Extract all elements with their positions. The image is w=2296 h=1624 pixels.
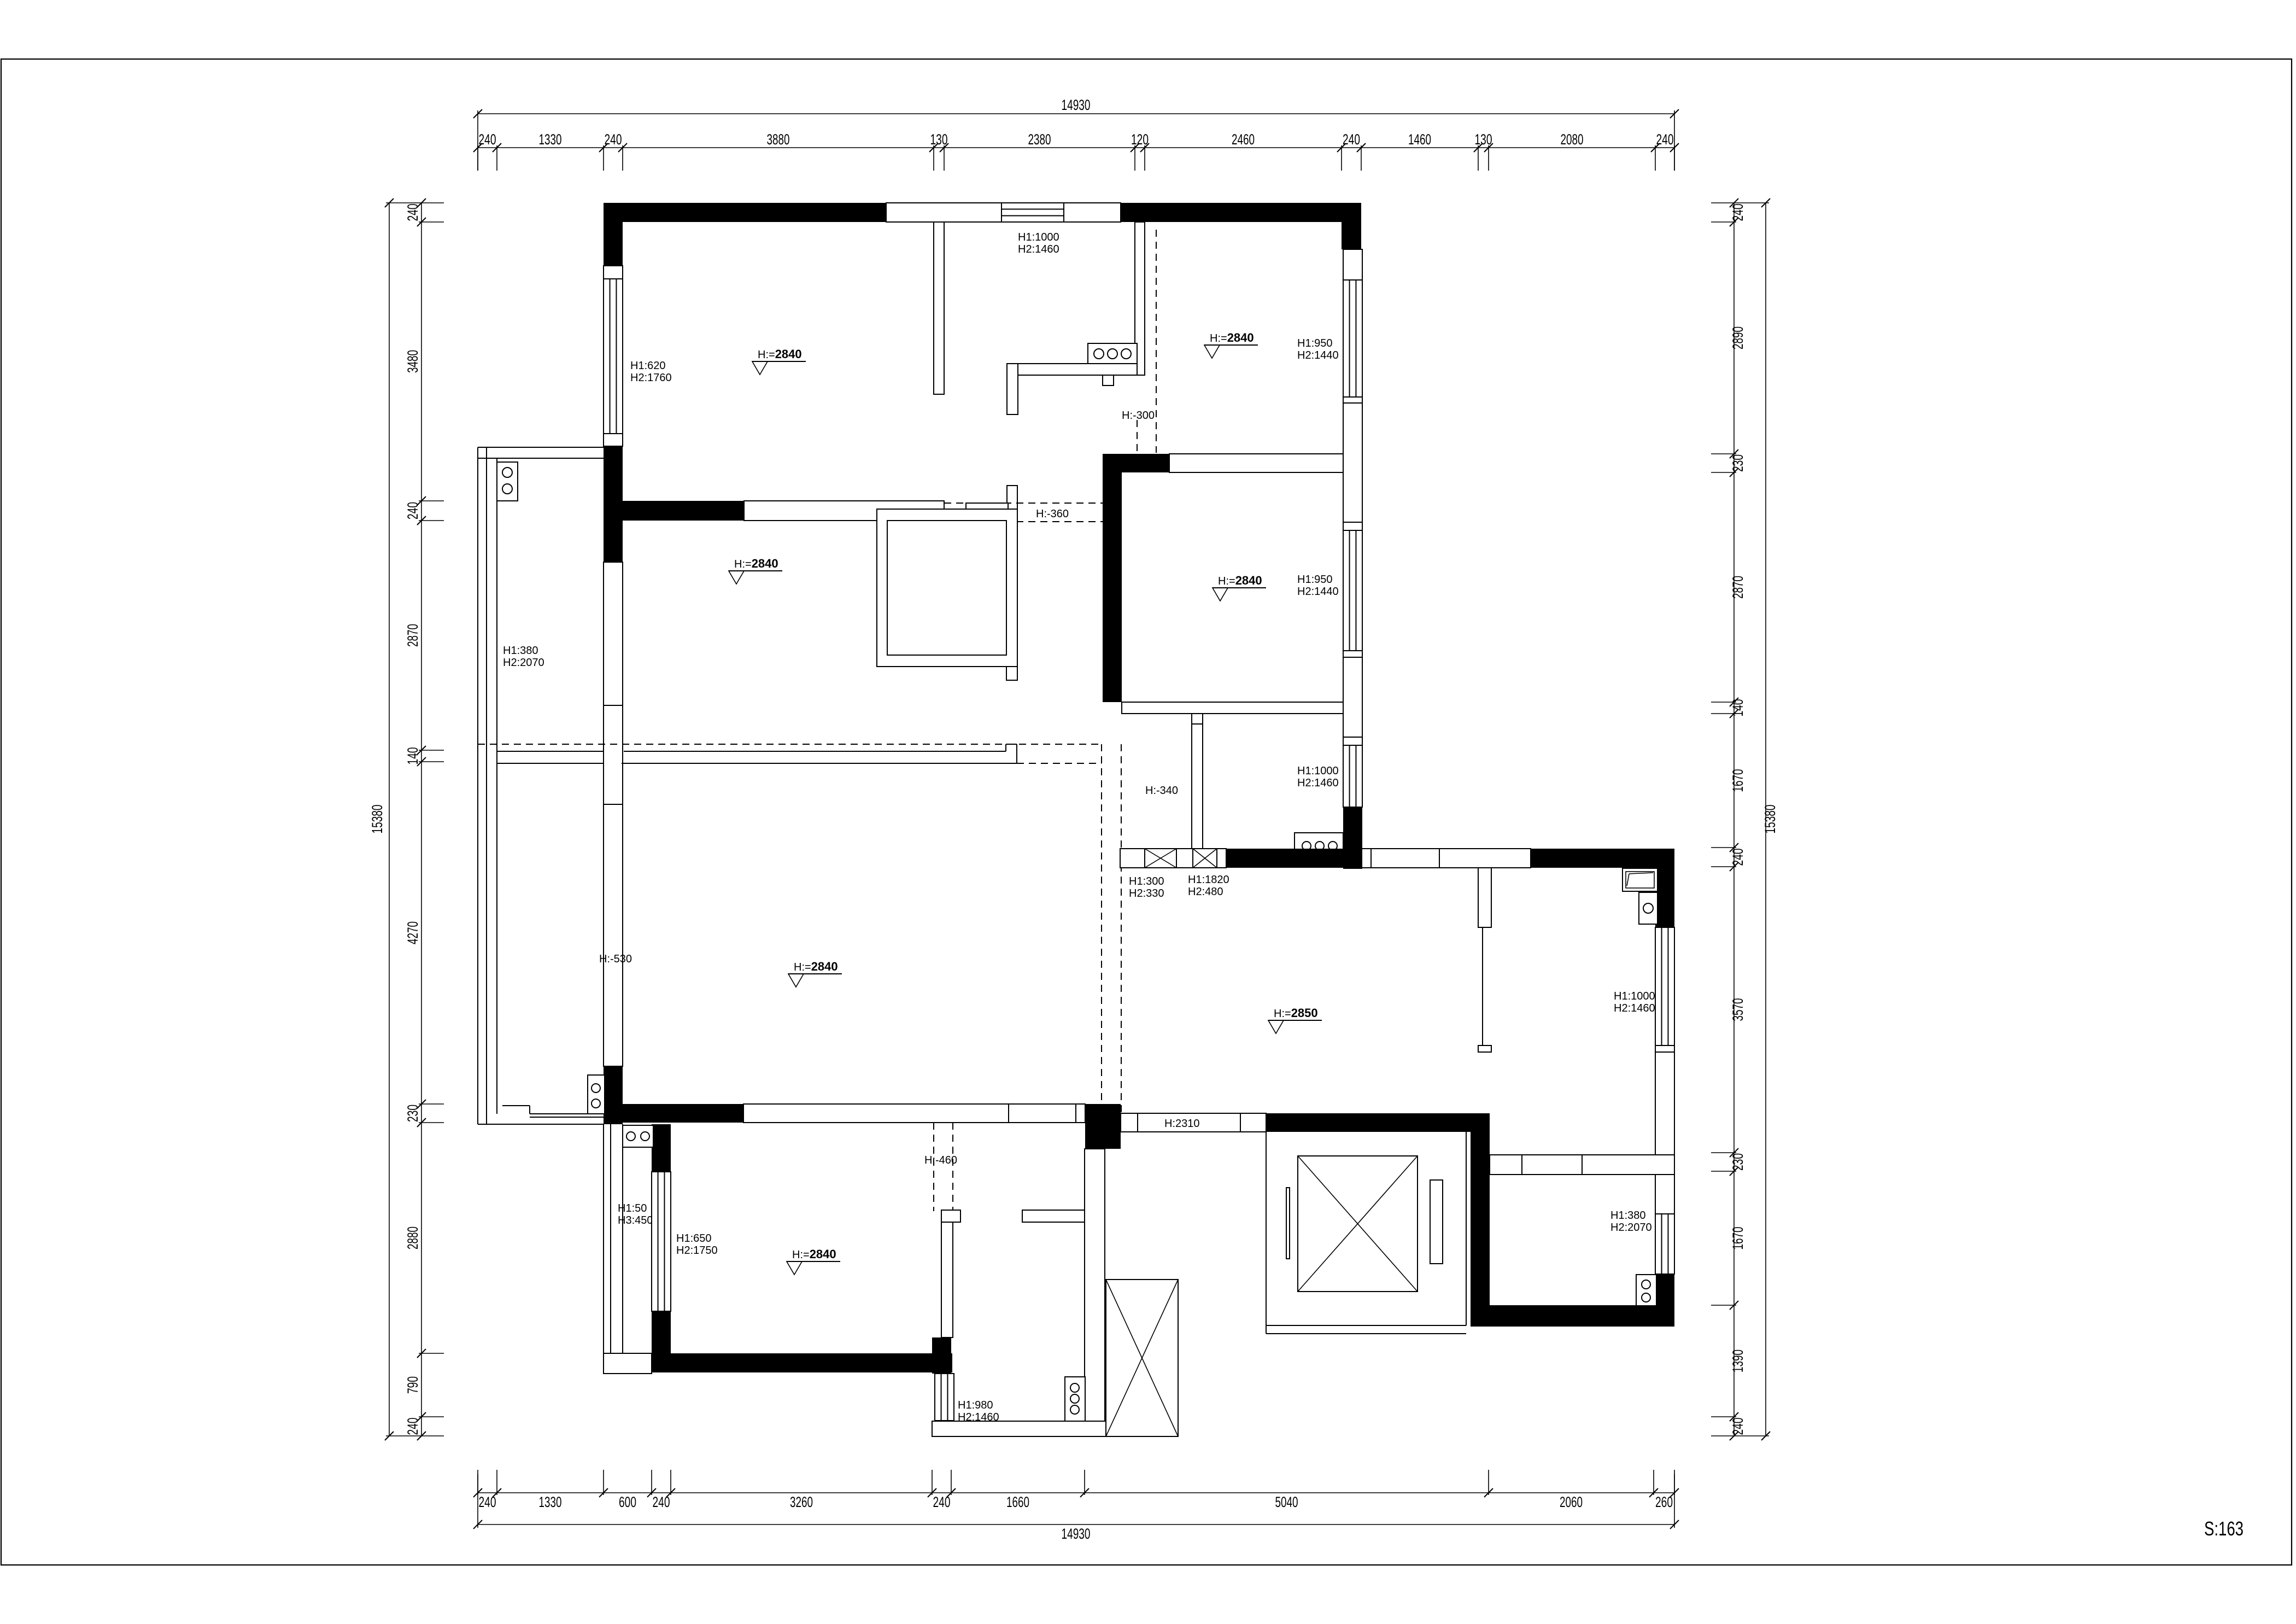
svg-text:15380: 15380 [369,805,385,834]
svg-text:240: 240 [405,1418,421,1435]
svg-text:H2:1440: H2:1440 [1297,349,1339,361]
svg-text:H1:950: H1:950 [1297,574,1333,586]
svg-text:2460: 2460 [1232,131,1255,148]
svg-text:230: 230 [1730,454,1746,472]
svg-text:2380: 2380 [1028,131,1051,148]
svg-text:H:=2840: H:=2840 [794,960,838,973]
svg-text:H1:380: H1:380 [503,645,538,657]
svg-text:H:=2840: H:=2840 [792,1247,836,1261]
svg-text:H2:1750: H2:1750 [676,1245,718,1257]
svg-text:240: 240 [933,1494,951,1510]
svg-text:140: 140 [1730,699,1746,717]
svg-text:H2:1460: H2:1460 [1614,1002,1655,1014]
svg-text:240: 240 [1730,849,1746,866]
svg-text:2890: 2890 [1730,326,1746,349]
svg-text:H2:1460: H2:1460 [1297,777,1339,789]
svg-text:240: 240 [1730,1418,1746,1435]
svg-text:240: 240 [405,502,421,519]
svg-text:240: 240 [405,204,421,221]
svg-text:240: 240 [479,131,496,148]
svg-text:130: 130 [1475,131,1492,148]
svg-text:14930: 14930 [1062,97,1091,113]
svg-text:H2:1760: H2:1760 [630,372,672,384]
svg-text:600: 600 [619,1494,636,1510]
svg-text:140: 140 [405,747,421,765]
svg-text:4270: 4270 [405,921,421,944]
svg-text:1670: 1670 [1730,769,1746,792]
svg-text:H:=2850: H:=2850 [1274,1006,1318,1020]
svg-text:240: 240 [1730,204,1746,221]
svg-text:3480: 3480 [405,350,421,373]
svg-text:H2:480: H2:480 [1188,886,1223,898]
svg-text:260: 260 [1655,1494,1673,1510]
svg-text:H:2310: H:2310 [1164,1118,1200,1130]
svg-text:H2:1440: H2:1440 [1297,586,1339,598]
svg-text:H:=2840: H:=2840 [1218,574,1262,587]
svg-text:240: 240 [479,1494,496,1510]
svg-text:1330: 1330 [539,131,562,148]
svg-text:H1:1000: H1:1000 [1018,231,1059,243]
svg-text:H1:950: H1:950 [1297,337,1333,349]
svg-text:230: 230 [1730,1153,1746,1171]
svg-text:H2:2070: H2:2070 [1610,1222,1652,1234]
svg-text:H1:650: H1:650 [676,1232,712,1245]
svg-text:H:-460: H:-460 [924,1154,957,1166]
svg-text:2870: 2870 [405,624,421,647]
svg-text:H1:300: H1:300 [1129,875,1164,887]
svg-text:H2:330: H2:330 [1129,887,1164,899]
svg-text:130: 130 [930,131,948,148]
svg-text:1660: 1660 [1006,1494,1029,1510]
svg-text:2870: 2870 [1730,576,1746,599]
svg-text:240: 240 [605,131,622,148]
svg-text:2880: 2880 [405,1226,421,1249]
svg-text:2080: 2080 [1561,131,1584,148]
svg-text:H:=2840: H:=2840 [758,347,802,361]
svg-text:H1:1000: H1:1000 [1297,765,1339,777]
svg-text:1390: 1390 [1730,1350,1746,1372]
svg-text:3570: 3570 [1730,998,1746,1021]
svg-text:H:-340: H:-340 [1145,785,1178,797]
svg-text:H:=2840: H:=2840 [1210,331,1254,344]
svg-text:H1:980: H1:980 [958,1399,993,1411]
svg-text:H1:620: H1:620 [630,360,666,372]
svg-text:3880: 3880 [767,131,790,148]
svg-text:1330: 1330 [539,1494,562,1510]
svg-text:H1:380: H1:380 [1610,1210,1646,1222]
svg-text:14930: 14930 [1062,1526,1091,1542]
svg-text:790: 790 [405,1376,421,1394]
svg-text:H:=2840: H:=2840 [734,557,778,570]
svg-text:H2:1460: H2:1460 [1018,243,1059,255]
svg-text:H:-530: H:-530 [599,953,632,965]
svg-text:H1:1820: H1:1820 [1188,874,1229,886]
svg-text:S:163: S:163 [2204,1517,2244,1540]
svg-text:1670: 1670 [1730,1227,1746,1250]
svg-text:1460: 1460 [1408,131,1431,148]
svg-text:H1:1000: H1:1000 [1614,990,1655,1002]
svg-text:H2:2070: H2:2070 [503,657,544,669]
svg-text:3260: 3260 [790,1494,813,1510]
svg-text:2060: 2060 [1560,1494,1583,1510]
svg-text:15380: 15380 [1762,805,1778,834]
svg-text:120: 120 [1131,131,1149,148]
svg-text:H:-360: H:-360 [1036,508,1069,520]
svg-text:H:-300: H:-300 [1122,410,1155,422]
svg-text:240: 240 [653,1494,670,1510]
svg-text:5040: 5040 [1275,1494,1298,1510]
svg-text:240: 240 [1656,131,1674,148]
svg-text:230: 230 [405,1105,421,1122]
svg-text:240: 240 [1343,131,1360,148]
